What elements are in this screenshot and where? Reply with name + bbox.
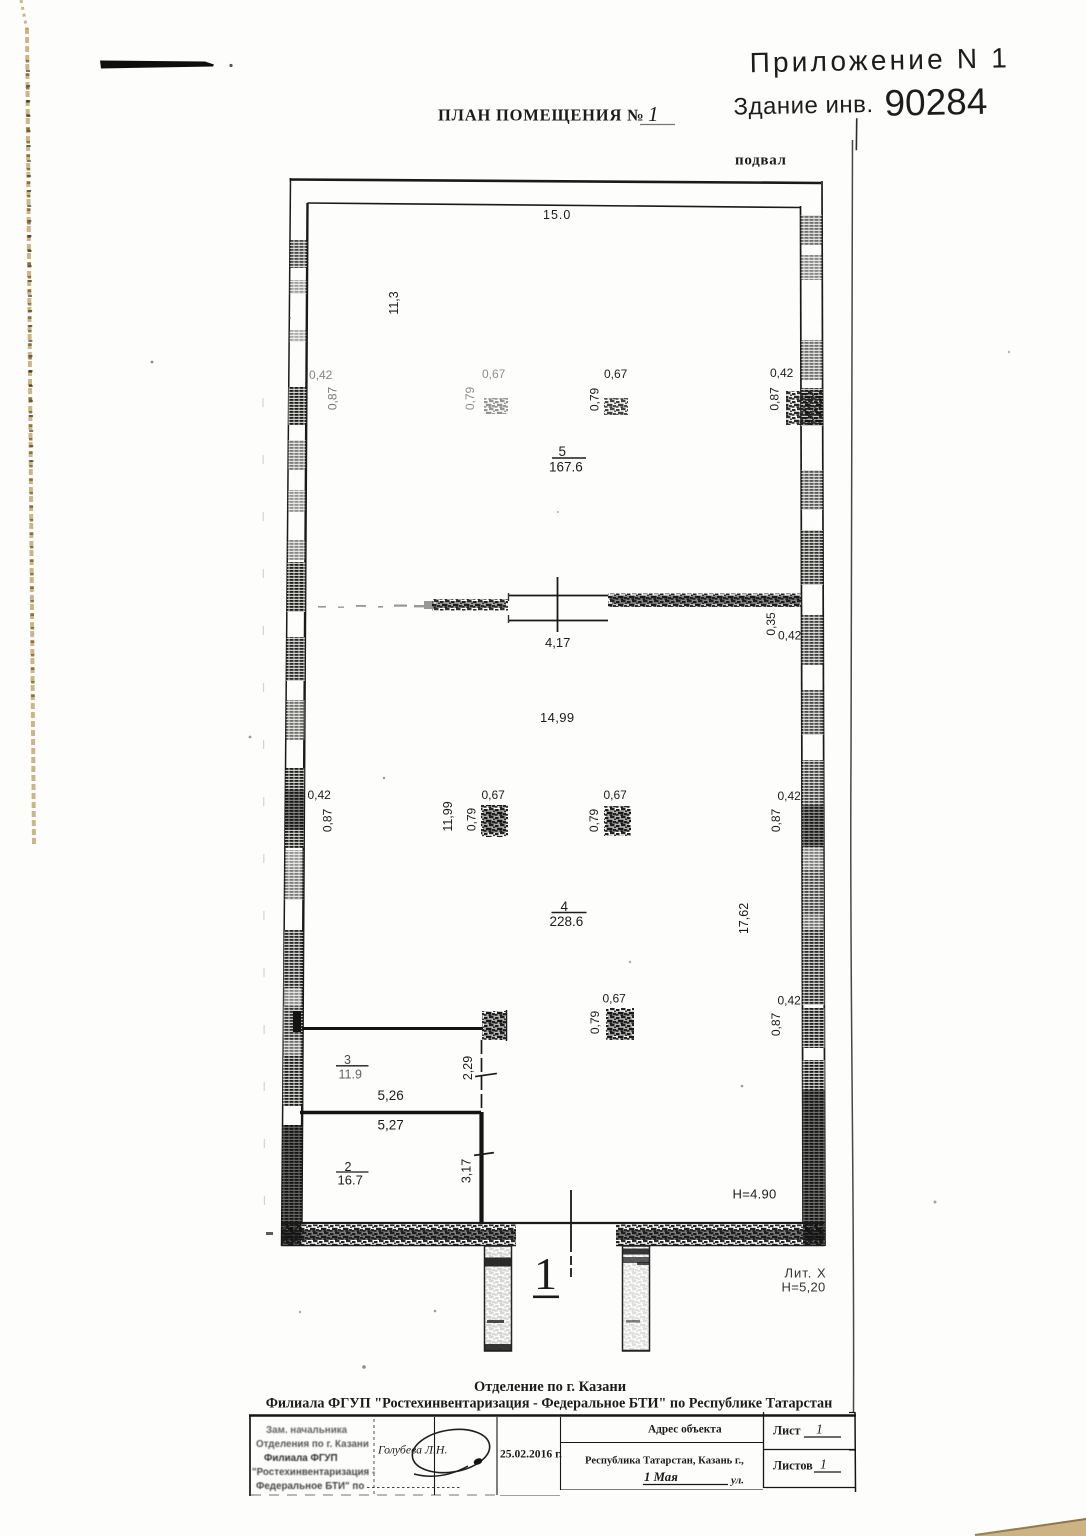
svg-text:Листов: Листов (773, 1459, 813, 1473)
svg-text:Приложение N 1: Приложение N 1 (749, 42, 1010, 78)
svg-text:0,42: 0,42 (778, 994, 802, 1008)
svg-text:Отделение по г. Казани: Отделение по г. Казани (474, 1379, 626, 1395)
svg-text:167.6: 167.6 (549, 460, 583, 475)
svg-text:0,87: 0,87 (326, 386, 340, 410)
svg-text:15.0: 15.0 (543, 208, 571, 222)
svg-text:"Ростехинвентаризация -: "Ростехинвентаризация - (252, 1467, 375, 1478)
svg-text:Филиала ФГУП: Филиала ФГУП (264, 1453, 338, 1464)
svg-text:11,3: 11,3 (387, 291, 401, 314)
svg-text:0,42: 0,42 (308, 788, 332, 802)
svg-text:Н=5,20: Н=5,20 (782, 1280, 826, 1295)
svg-text:25.02.2016 г.: 25.02.2016 г. (500, 1448, 562, 1461)
svg-text:ПЛАН ПОМЕЩЕНИЯ №: ПЛАН ПОМЕЩЕНИЯ № (438, 106, 644, 125)
svg-text:0,87: 0,87 (769, 1012, 783, 1036)
svg-text:0,87: 0,87 (769, 808, 783, 832)
svg-text:Отделения по г. Казани: Отделения по г. Казани (256, 1439, 369, 1450)
svg-text:Зам. начальника: Зам. начальника (266, 1425, 348, 1436)
svg-text:5: 5 (559, 444, 567, 459)
svg-text:14,99: 14,99 (540, 710, 575, 725)
svg-text:ул.: ул. (729, 1475, 744, 1487)
svg-text:0,35: 0,35 (764, 612, 778, 636)
svg-text:1: 1 (820, 1457, 827, 1472)
svg-text:Филиала ФГУП "Ростехинвентариз: Филиала ФГУП "Ростехинвентаризация - Фед… (266, 1396, 833, 1412)
svg-text:Адрес объекта: Адрес объекта (648, 1424, 722, 1436)
svg-text:0,79: 0,79 (588, 1010, 602, 1034)
svg-text:Лист: Лист (773, 1424, 801, 1438)
svg-text:4: 4 (561, 899, 569, 914)
svg-text:0,42: 0,42 (778, 789, 802, 803)
svg-text:2,29: 2,29 (461, 1056, 475, 1080)
svg-text:Федеральное БТИ" по: Федеральное БТИ" по (256, 1481, 364, 1492)
svg-text:0,67: 0,67 (482, 788, 506, 802)
svg-text:0,79: 0,79 (465, 807, 479, 831)
svg-text:11.9: 11.9 (339, 1068, 362, 1082)
svg-text:11,99: 11,99 (441, 801, 455, 831)
svg-text:1 Мая: 1 Мая (644, 1470, 678, 1484)
svg-text:90284: 90284 (884, 81, 988, 124)
svg-text:5,26: 5,26 (378, 1088, 404, 1103)
svg-text:0,79: 0,79 (587, 808, 601, 832)
svg-text:подвал: подвал (735, 153, 787, 169)
svg-text:0,79: 0,79 (463, 386, 477, 410)
svg-text:4,17: 4,17 (545, 635, 570, 650)
svg-text:0,67: 0,67 (603, 992, 627, 1006)
svg-text:0,87: 0,87 (321, 808, 335, 832)
svg-text:1: 1 (648, 102, 659, 126)
svg-text:0,67: 0,67 (482, 367, 506, 381)
svg-text:Здание инв.: Здание инв. (733, 91, 874, 121)
svg-text:1: 1 (534, 1248, 557, 1299)
svg-text:Лит. Х: Лит. Х (785, 1266, 827, 1281)
svg-text:0,67: 0,67 (604, 788, 628, 802)
svg-text:3: 3 (344, 1053, 351, 1067)
svg-text:228.6: 228.6 (550, 914, 584, 929)
svg-text:16.7: 16.7 (338, 1173, 363, 1188)
svg-text:H=4.90: H=4.90 (733, 1187, 777, 1202)
svg-text:0,42: 0,42 (770, 366, 794, 380)
svg-text:0,42: 0,42 (309, 368, 333, 382)
svg-text:0,79: 0,79 (588, 387, 602, 411)
svg-text:0,42: 0,42 (778, 629, 802, 643)
svg-text:5,27: 5,27 (378, 1118, 404, 1133)
svg-text:17,62: 17,62 (737, 903, 751, 934)
svg-text:0,67: 0,67 (604, 367, 628, 381)
svg-text:3,17: 3,17 (459, 1159, 473, 1183)
svg-text:0,87: 0,87 (768, 387, 782, 411)
svg-text:Республика Татарстан, Казань г: Республика Татарстан, Казань г., (585, 1456, 744, 1467)
svg-text:1: 1 (816, 1422, 823, 1437)
